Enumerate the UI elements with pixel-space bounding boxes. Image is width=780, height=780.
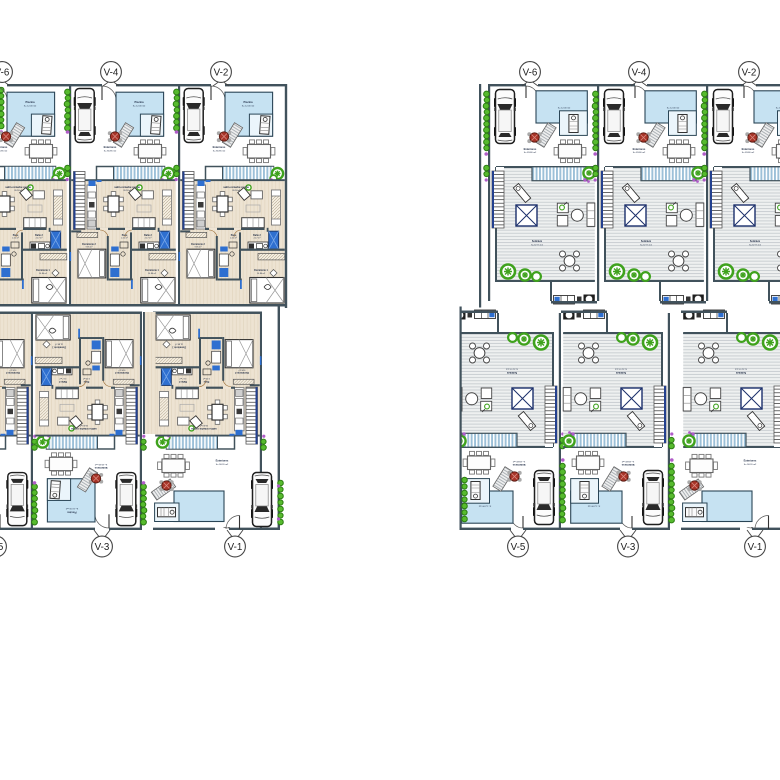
svg-text:V-2: V-2 [742, 68, 757, 79]
svg-text:V-1: V-1 [748, 542, 763, 553]
svg-text:V-3: V-3 [95, 542, 110, 553]
svg-text:S= 58.20 m2: S= 58.20 m2 [216, 464, 229, 466]
svg-text:S= 58.20 m2: S= 58.20 m2 [744, 464, 757, 466]
svg-text:V-5: V-5 [0, 542, 4, 553]
svg-text:Exteriores: Exteriores [744, 459, 757, 463]
svg-text:V-6: V-6 [523, 68, 538, 79]
svg-text:V-6: V-6 [0, 68, 10, 79]
svg-text:V-5: V-5 [511, 542, 526, 553]
svg-text:Exteriores: Exteriores [216, 459, 229, 463]
svg-text:V-4: V-4 [632, 68, 647, 79]
svg-text:V-2: V-2 [214, 68, 229, 79]
svg-text:V-4: V-4 [104, 68, 119, 79]
svg-text:V-1: V-1 [228, 542, 243, 553]
svg-text:V-3: V-3 [621, 542, 636, 553]
